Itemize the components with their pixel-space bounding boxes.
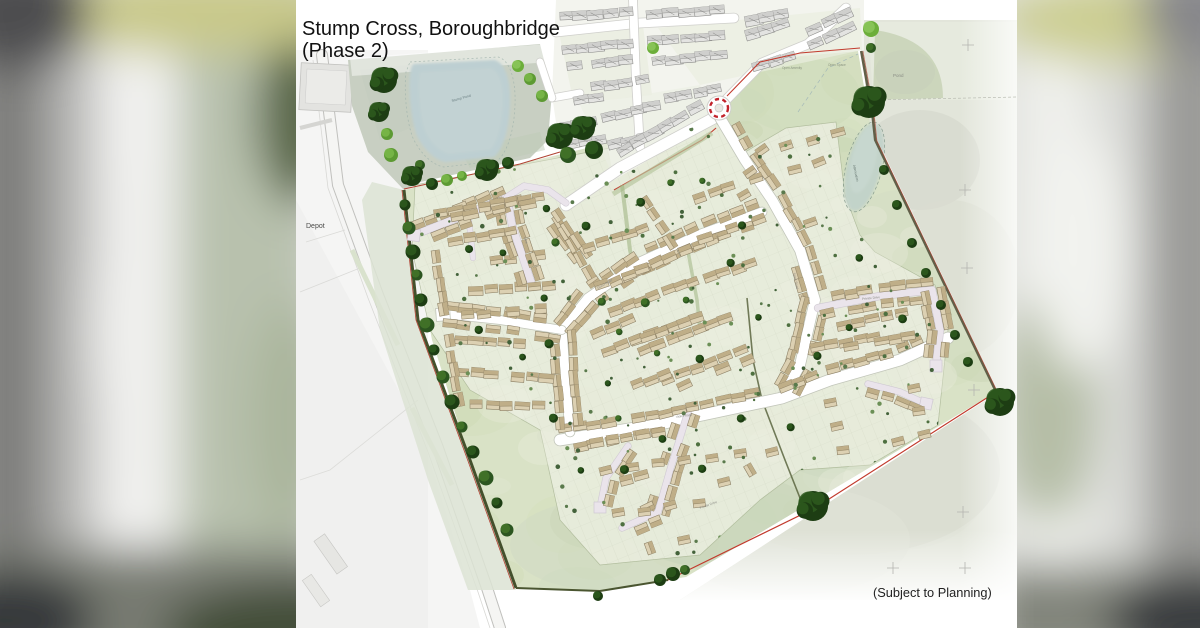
svg-text:(Subject to Planning): (Subject to Planning) [873, 585, 992, 600]
svg-text:Stump Cross, Boroughbridge: Stump Cross, Boroughbridge [302, 18, 560, 40]
svg-text:Open Space: Open Space [828, 63, 846, 67]
svg-text:Pond: Pond [893, 73, 904, 78]
svg-text:Open Amenity: Open Amenity [782, 66, 802, 70]
svg-text:(Phase 2): (Phase 2) [302, 40, 389, 62]
svg-text:Depot: Depot [306, 223, 325, 230]
